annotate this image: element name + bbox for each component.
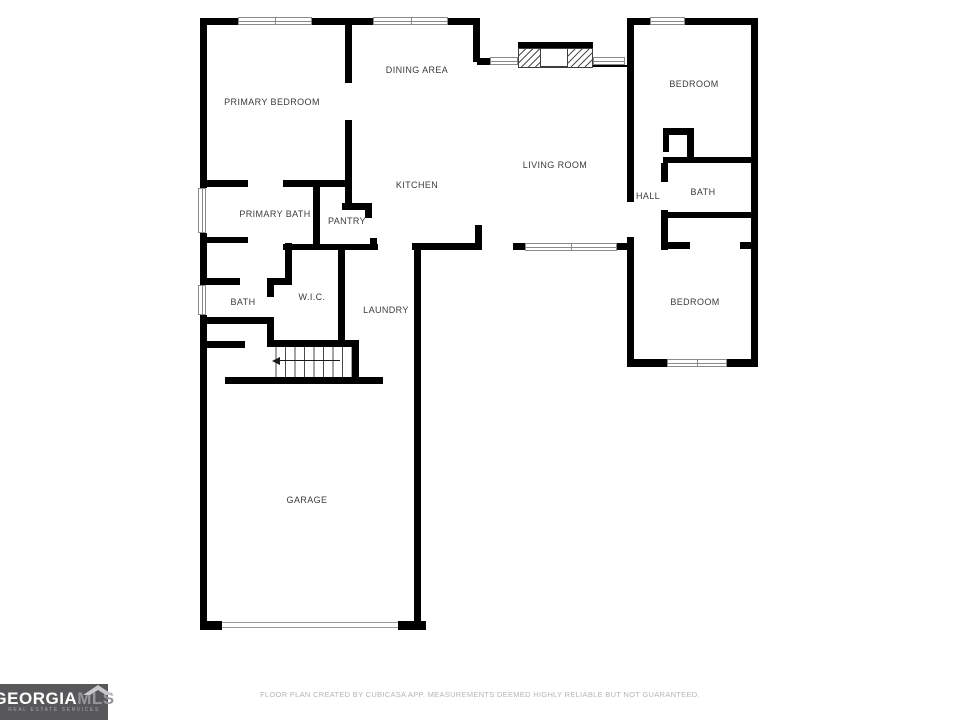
- wall-segment: [627, 359, 667, 367]
- wall-segment: [267, 278, 292, 285]
- wall-segment: [200, 180, 248, 187]
- window-symbol: [490, 57, 518, 65]
- wall-segment: [663, 130, 669, 152]
- window-symbol: [198, 188, 206, 233]
- wall-segment: [200, 341, 245, 348]
- room-label-kitchen: KITCHEN: [396, 180, 438, 190]
- room-label-bedroom-top: BEDROOM: [669, 79, 718, 89]
- window-divider: [411, 18, 412, 24]
- window-symbol: [593, 57, 625, 65]
- window-symbol: [667, 359, 727, 367]
- wall-segment: [200, 317, 274, 324]
- room-label-bath-right: BATH: [691, 187, 716, 197]
- disclaimer-text: FLOOR PLAN CREATED BY CUBICASA APP. MEAS…: [260, 690, 700, 699]
- room-label-bedroom-bottom: BEDROOM: [670, 297, 719, 307]
- wall-segment: [200, 237, 248, 243]
- room-label-dining-area: DINING AREA: [386, 65, 448, 75]
- wall-segment: [661, 163, 668, 182]
- room-label-living-room: LIVING ROOM: [523, 160, 587, 170]
- wall-segment: [225, 377, 383, 384]
- wall-segment: [473, 18, 480, 62]
- floor-plan-page: PRIMARY BEDROOMDINING AREABEDROOMLIVING …: [0, 0, 960, 720]
- stair-direction-arrow: [276, 360, 340, 361]
- room-label-hall: HALL: [636, 191, 660, 201]
- wall-segment: [477, 58, 490, 65]
- wall-segment: [345, 120, 352, 203]
- window-divider: [571, 244, 572, 250]
- logo-brand-text: GEORGIAMLS: [0, 691, 115, 706]
- logo-roof-icon: [83, 685, 113, 695]
- wall-segment: [663, 157, 758, 163]
- wall-segment: [345, 25, 352, 83]
- wall-segment: [342, 203, 372, 210]
- wall-segment: [200, 18, 207, 188]
- wall-segment: [398, 621, 426, 630]
- room-label-bath-left: BATH: [231, 297, 256, 307]
- wall-segment: [685, 18, 758, 25]
- window-symbol: [650, 17, 685, 25]
- wall-segment: [475, 225, 482, 243]
- window-divider: [275, 18, 276, 24]
- stair-direction-arrowhead: [268, 357, 280, 365]
- room-label-laundry: LAUNDRY: [363, 305, 409, 315]
- wall-segment: [412, 243, 482, 250]
- wall-segment: [627, 18, 634, 202]
- garage-door-symbol: [222, 622, 398, 628]
- window-symbol: [198, 285, 206, 315]
- wall-segment: [663, 242, 690, 249]
- wall-segment: [200, 621, 222, 630]
- fireplace-symbol: [518, 42, 593, 68]
- window-symbol: [525, 243, 617, 251]
- wall-segment: [513, 243, 525, 250]
- wall-segment: [200, 315, 207, 630]
- wall-segment: [203, 278, 240, 285]
- wall-segment: [283, 180, 352, 187]
- room-label-pantry: PANTRY: [328, 216, 366, 226]
- wall-segment: [283, 244, 378, 250]
- wall-segment: [414, 243, 421, 630]
- window-symbol: [373, 17, 448, 25]
- wall-segment: [751, 18, 758, 367]
- wall-segment: [365, 210, 372, 218]
- wall-segment: [267, 340, 358, 347]
- wall-segment: [627, 237, 634, 367]
- wall-segment: [313, 187, 320, 250]
- fireplace-firebox: [540, 48, 568, 67]
- wall-segment: [267, 285, 274, 297]
- wall-segment: [661, 212, 758, 218]
- wall-segment: [740, 242, 758, 249]
- room-label-wic: W.I.C.: [299, 292, 326, 302]
- window-symbol: [238, 17, 312, 25]
- wall-segment: [200, 18, 238, 25]
- room-label-primary-bath: PRIMARY BATH: [239, 209, 310, 219]
- wall-segment: [593, 65, 627, 67]
- georgia-mls-logo: GEORGIAMLS REAL ESTATE SERVICES: [0, 684, 108, 720]
- wall-segment: [727, 359, 758, 367]
- wall-segment: [312, 18, 373, 25]
- room-label-primary-bedroom: PRIMARY BEDROOM: [224, 97, 320, 107]
- window-divider: [697, 360, 698, 366]
- logo-georgia-text: GEORGIA: [0, 689, 77, 708]
- room-label-garage: GARAGE: [287, 495, 328, 505]
- wall-segment: [338, 244, 345, 340]
